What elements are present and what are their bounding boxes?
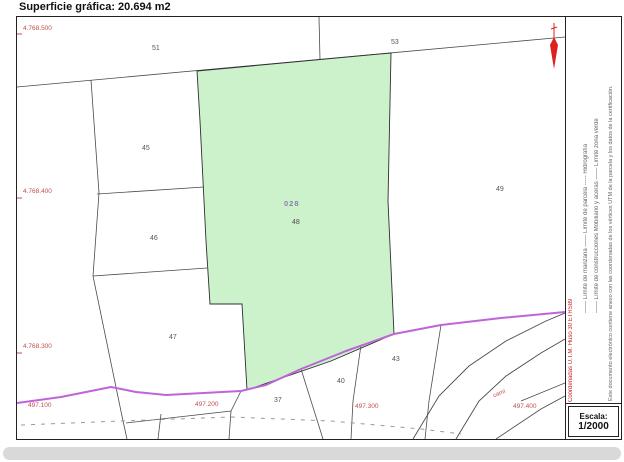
building-code-label: 028 (284, 199, 300, 208)
scale-value: 1/2000 (578, 421, 609, 432)
parcel-number: 53 (391, 39, 399, 46)
easting-label: 497.200 (195, 401, 219, 408)
parcel-boundary (97, 187, 204, 194)
easting-label: 497.100 (28, 402, 52, 409)
northing-label: 4.768.500 (23, 25, 52, 32)
cadastral-viewer: Superficie gráfica: 20.694 m2 (0, 0, 624, 462)
legend-sidebar: Coordenadas U.T.M. Huso 30 ETRS89 —— Lím… (565, 17, 621, 439)
parcel-boundary (158, 414, 161, 439)
dashed-track (21, 417, 461, 434)
parcel-boundary (425, 325, 441, 439)
cadastral-map[interactable] (17, 17, 565, 439)
scale-box: Escala: 1/2000 (566, 403, 621, 439)
northing-label: 4.768.300 (23, 343, 52, 350)
scale-label: Escala: (579, 412, 607, 421)
parcel-number: 51 (152, 45, 160, 52)
parcel-boundary (351, 345, 361, 439)
parcel-boundary (319, 17, 320, 60)
parcel-number-highlighted: 48 (292, 219, 300, 226)
parcel-number: 46 (150, 235, 158, 242)
legend-column-1: —— Límite de manzana —— Límite de parcel… (583, 23, 589, 313)
page-title: Superficie gráfica: 20.694 m2 (19, 1, 171, 13)
parcel-boundary (91, 80, 127, 439)
map-frame: 4.768.500 4.768.400 4.768.300 497.100 49… (16, 16, 622, 440)
parcel-boundary (521, 383, 565, 401)
parcel-boundary (301, 369, 323, 439)
window-bottom-bar (3, 447, 621, 460)
parcel-number: 47 (169, 334, 177, 341)
road-edge (456, 339, 565, 439)
north-arrow-icon (550, 23, 558, 69)
parcel-number: 40 (337, 378, 345, 385)
parcel-boundary (93, 268, 207, 276)
northing-label: 4.768.400 (23, 188, 52, 195)
parcel-number: 45 (142, 145, 150, 152)
utm-coordinates-note: Coordenadas U.T.M. Huso 30 ETRS89 (568, 222, 574, 402)
parcel-number: 49 (496, 186, 504, 193)
certification-note: Este documento electrónico contiene anex… (608, 21, 614, 401)
legend-column-2: —— Límite de construcciones Mobiliario y… (594, 23, 600, 313)
parcel-number: 43 (392, 356, 400, 363)
parcel-boundary (229, 411, 231, 439)
road-edge (413, 313, 565, 439)
easting-label: 497.400 (513, 403, 537, 410)
parcel-boundary (126, 391, 241, 423)
parcel-number: 37 (274, 397, 282, 404)
easting-label: 497.300 (355, 403, 379, 410)
